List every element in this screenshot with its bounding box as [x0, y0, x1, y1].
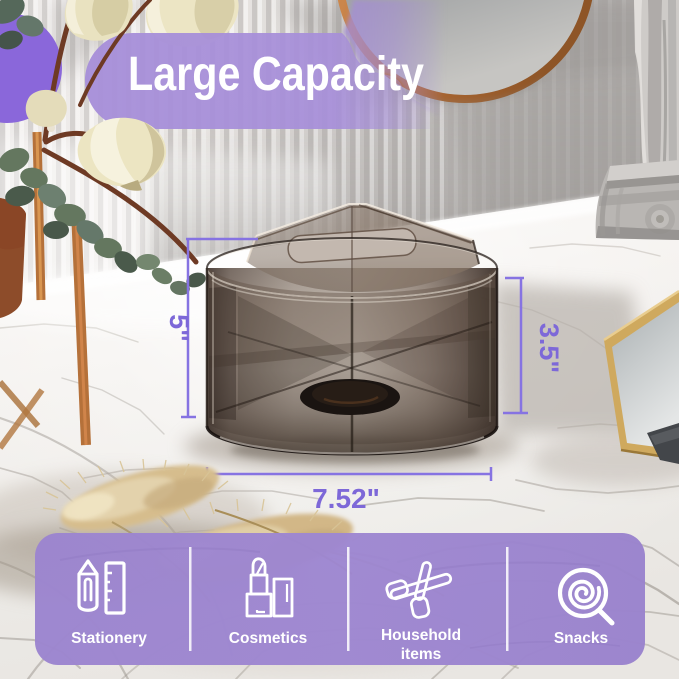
svg-text:Stationery: Stationery — [71, 630, 147, 647]
svg-text:7.52": 7.52" — [312, 483, 380, 514]
svg-text:3.5": 3.5" — [534, 323, 564, 373]
svg-text:items: items — [401, 646, 442, 663]
svg-text:Large Capacity: Large Capacity — [128, 48, 424, 101]
svg-text:Snacks: Snacks — [554, 630, 608, 647]
svg-text:Cosmetics: Cosmetics — [229, 630, 307, 647]
svg-text:5": 5" — [164, 314, 194, 342]
svg-text:Household: Household — [381, 627, 461, 644]
